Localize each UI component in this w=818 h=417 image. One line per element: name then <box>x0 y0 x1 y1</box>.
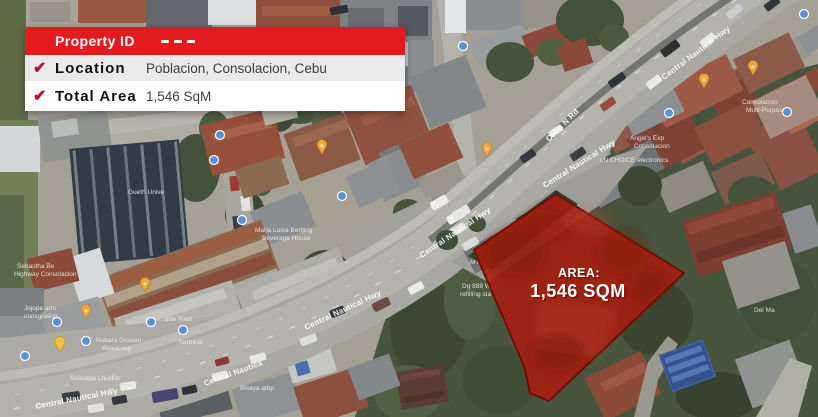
svg-text:Beverage House: Beverage House <box>262 235 311 242</box>
svg-text:Del Ma: Del Ma <box>754 307 775 314</box>
svg-text:refilling sta: refilling sta <box>460 291 491 298</box>
svg-text:Multi-Purpose: Multi-Purpose <box>746 107 786 114</box>
svg-text:Sebastha Be: Sebastha Be <box>17 263 55 270</box>
svg-text:Highway Consolacion: Highway Consolacion <box>14 271 77 278</box>
svg-text:Gueth Unive: Gueth Unive <box>128 189 165 196</box>
svg-text:1,546 SQM: 1,546 SQM <box>530 281 626 301</box>
svg-text:Terminal: Terminal <box>178 339 203 346</box>
svg-text:Beaucoop: Beaucoop <box>102 345 132 352</box>
svg-text:eda Tradi: eda Tradi <box>165 316 192 323</box>
svg-text:Consolacion: Consolacion <box>742 99 778 106</box>
svg-text:Dg 888 W: Dg 888 W <box>462 283 492 290</box>
svg-text:AREA:: AREA: <box>558 266 600 280</box>
svg-text:Sebuana Lhuillier: Sebuana Lhuillier <box>70 375 121 382</box>
svg-text:Angel's Exp: Angel's Exp <box>630 135 665 142</box>
svg-text:Nobara Giclean: Nobara Giclean <box>96 337 142 344</box>
svg-text:Maria Luisa Bertling: Maria Luisa Bertling <box>255 227 313 234</box>
svg-text:Bisaya atbp: Bisaya atbp <box>240 385 274 392</box>
svg-text:Consolacion: Consolacion <box>634 143 670 150</box>
svg-text:Jojope arm: Jojope arm <box>24 305 56 312</box>
svg-text:immigration: immigration <box>24 313 58 320</box>
svg-text:LN CHOICE electronics: LN CHOICE electronics <box>600 157 669 164</box>
